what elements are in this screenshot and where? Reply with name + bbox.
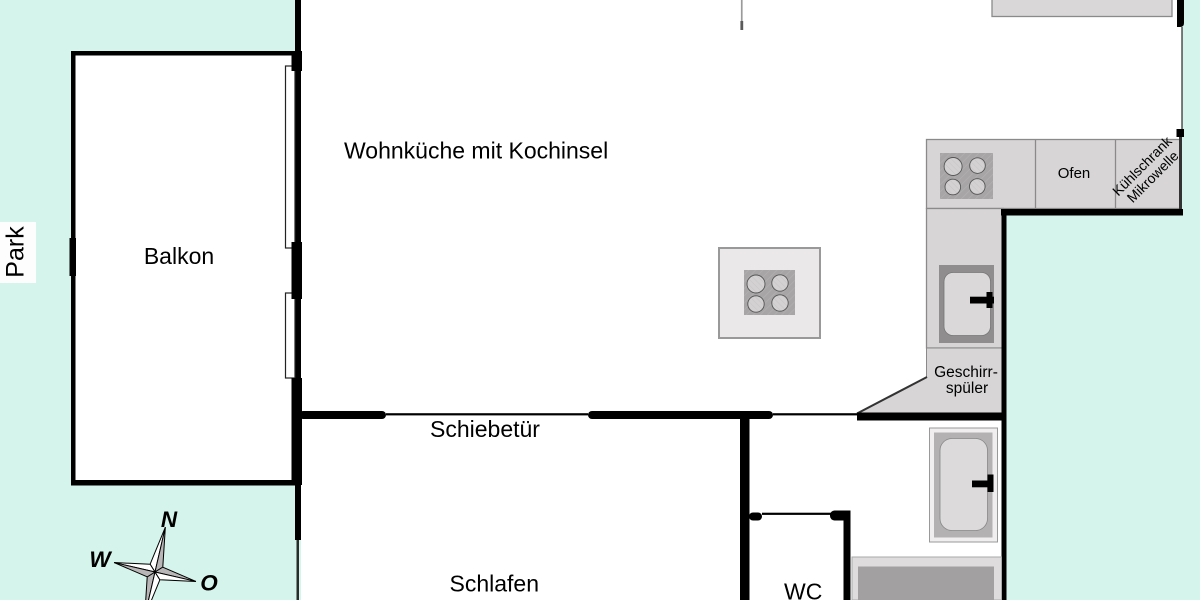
svg-text:N: N [161,507,178,532]
svg-text:Park: Park [2,226,30,278]
svg-text:Ofen: Ofen [1058,165,1091,182]
svg-text:Schlafen: Schlafen [450,571,540,597]
svg-text:Schiebetür: Schiebetür [430,416,540,442]
svg-text:spüler: spüler [946,380,988,397]
svg-text:WC: WC [784,579,822,600]
svg-text:O: O [200,571,218,596]
svg-text:W: W [89,547,112,572]
svg-text:Balkon: Balkon [144,243,214,269]
svg-text:Geschirr-: Geschirr- [934,364,998,381]
svg-text:Wohnküche mit Kochinsel: Wohnküche mit Kochinsel [344,138,608,164]
